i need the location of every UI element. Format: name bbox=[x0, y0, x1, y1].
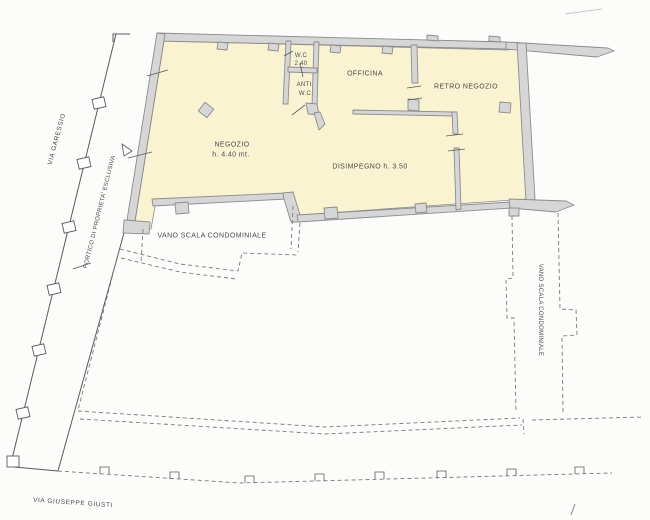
courtyard-boundary bbox=[78, 411, 520, 427]
column-mark bbox=[245, 476, 254, 483]
officina-partition bbox=[411, 45, 418, 83]
column-mark bbox=[507, 469, 516, 476]
courtyard-boundary-right bbox=[532, 417, 643, 420]
portico-pillar bbox=[32, 344, 46, 356]
vano-right-boundary bbox=[506, 216, 516, 412]
portico-pillar bbox=[92, 97, 106, 109]
top-wall-bump bbox=[382, 46, 393, 54]
wc-divider-wall bbox=[288, 67, 317, 73]
vano-left-boundary bbox=[298, 223, 300, 252]
bottom-wall-bump bbox=[324, 207, 338, 219]
top-wall-bump bbox=[217, 42, 228, 50]
portico-structure bbox=[7, 34, 130, 471]
portico-pillar bbox=[47, 283, 61, 295]
label-disimpegno: DISIMPEGNO h. 3.50 bbox=[332, 164, 407, 171]
street-column-marks bbox=[100, 467, 584, 483]
column-mark bbox=[437, 471, 446, 478]
top-wall-notch bbox=[427, 35, 438, 41]
portico-pillar bbox=[77, 157, 91, 169]
label-vano-scala-left: VANO SCALA CONDOMINIALE bbox=[157, 233, 266, 240]
dashed-boundaries bbox=[58, 206, 643, 483]
label-vano-scala-right: VANO SCALA CONDOMINIALE bbox=[537, 264, 543, 356]
scan-artifact-slash bbox=[571, 504, 575, 515]
portico-pillar bbox=[16, 407, 30, 419]
top-wall-notch bbox=[489, 36, 500, 42]
label-officina: OFFICINA bbox=[347, 71, 383, 78]
left-wall-foot bbox=[123, 220, 150, 234]
vano-right-boundary bbox=[523, 419, 524, 434]
top-wall-bump bbox=[330, 45, 341, 53]
portico-corner-pillar bbox=[7, 456, 19, 467]
column-mark bbox=[375, 472, 384, 479]
officina-door-jamb bbox=[408, 99, 419, 111]
scan-artifact bbox=[565, 9, 602, 14]
label-wc-height: 2.40 bbox=[295, 61, 308, 67]
portico-inner-line bbox=[58, 233, 124, 471]
street-boundary-line bbox=[58, 471, 612, 483]
portico-pillar bbox=[62, 221, 76, 233]
right-spur-foot bbox=[509, 208, 519, 216]
column-mark bbox=[315, 474, 324, 481]
negozio-bottom-pillar bbox=[175, 202, 189, 214]
label-anti-wc-2: W.C bbox=[299, 91, 311, 97]
column-mark bbox=[100, 467, 109, 474]
floor-plan-canvas: VIA GARESSIO PORTICO DI PROPRIETA' ESCLU… bbox=[0, 0, 650, 520]
disimpegno-right-wall-upper bbox=[452, 112, 458, 134]
label-wc: W.C bbox=[295, 53, 307, 59]
label-anti-wc-1: ANTI bbox=[297, 82, 312, 88]
vano-right-boundary bbox=[558, 213, 577, 412]
label-negozio-height: h. 4.40 mt. bbox=[212, 152, 249, 159]
window-flag-mark bbox=[122, 144, 132, 156]
courtyard-left-boundary bbox=[78, 262, 116, 410]
vano-left-boundary bbox=[120, 249, 299, 271]
bottom-wall-bump bbox=[415, 203, 427, 213]
retro-negozio-pillar bbox=[499, 102, 511, 113]
top-wall-bump bbox=[268, 43, 279, 51]
column-mark bbox=[575, 467, 584, 474]
label-negozio: NEGOZIO bbox=[214, 142, 249, 149]
floor-plan-drawing bbox=[0, 0, 650, 520]
label-retro-negozio: RETRO NEGOZIO bbox=[434, 84, 498, 91]
column-mark bbox=[170, 472, 179, 479]
